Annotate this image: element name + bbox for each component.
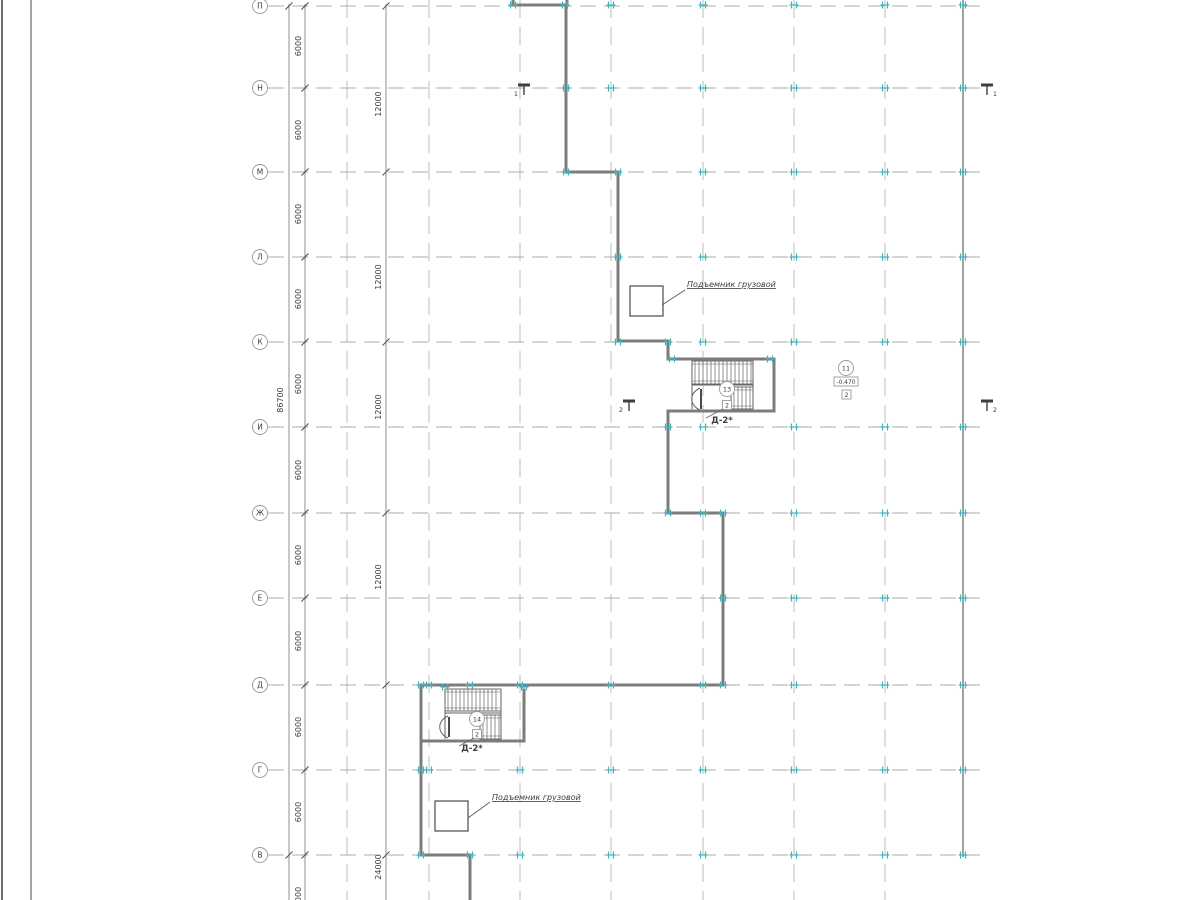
lift-leader-line	[468, 802, 490, 818]
dim-text-12000: 12000	[374, 264, 383, 289]
dim-text-12000: 12000	[374, 394, 383, 419]
axis-letter: Н	[257, 84, 263, 93]
axis-letter: Г	[258, 766, 263, 775]
dim-text-6000: 6000	[294, 374, 303, 394]
stair-designation: Д-2*	[461, 744, 483, 754]
dim-text-total: 86700	[276, 387, 285, 412]
section-number: 1	[993, 90, 997, 98]
axis-letter: В	[257, 851, 262, 860]
axis-letter: Е	[258, 594, 263, 603]
dim-text-12000: 12000	[374, 91, 383, 116]
room-number-text: 11	[842, 364, 850, 372]
elevation-text: -0.470	[837, 380, 856, 386]
stair-designation: Д-2*	[711, 416, 733, 426]
cargo-lift-box	[630, 286, 663, 316]
dim-text-6000: 6000	[294, 631, 303, 651]
floor-type-text: 2	[725, 402, 729, 409]
dim-text-6000: 6000	[294, 717, 303, 737]
cargo-lift-label: Подъемник грузовой	[687, 280, 776, 289]
dim-text-6000: 6000	[294, 802, 303, 822]
cargo-lift-label: Подъемник грузовой	[492, 793, 581, 802]
axis-letter: И	[257, 423, 263, 432]
dim-text-6000: 6000	[294, 289, 303, 309]
floor-type-text: 2	[845, 392, 849, 399]
cargo-lift-box	[435, 801, 468, 831]
axis-letter: Д	[257, 681, 263, 690]
floor-type-text: 2	[475, 731, 479, 738]
axis-letter: Л	[257, 253, 263, 262]
dim-text-6000: 6000	[294, 36, 303, 56]
axis-letter: П	[257, 2, 263, 11]
section-number: 2	[993, 406, 997, 414]
section-number: 1	[514, 90, 518, 98]
dim-text-6000: 6000	[294, 204, 303, 224]
room-number-text: 13	[723, 385, 731, 393]
dim-text-6000: 6000	[294, 120, 303, 140]
dim-text-6000: 6000	[294, 460, 303, 480]
door-swing-arc	[692, 388, 700, 410]
axis-letter: Ж	[256, 509, 264, 518]
section-number: 2	[619, 406, 623, 414]
door-swing-arc	[440, 716, 448, 738]
stair-flight	[692, 361, 753, 384]
dim-text-6000: 6000	[294, 887, 303, 900]
axis-letter: К	[257, 338, 263, 347]
lift-leader-line	[662, 290, 685, 305]
drawing-sheet: 8670060006000600060006000600060006000600…	[0, 0, 1200, 900]
dim-text-6000: 6000	[294, 545, 303, 565]
axis-letter: М	[257, 168, 263, 177]
room-number-text: 14	[473, 715, 481, 723]
dim-text-12000: 12000	[374, 564, 383, 589]
dim-text-12000: 24000	[374, 854, 383, 879]
floor-plan-canvas: 8670060006000600060006000600060006000600…	[0, 0, 1200, 900]
